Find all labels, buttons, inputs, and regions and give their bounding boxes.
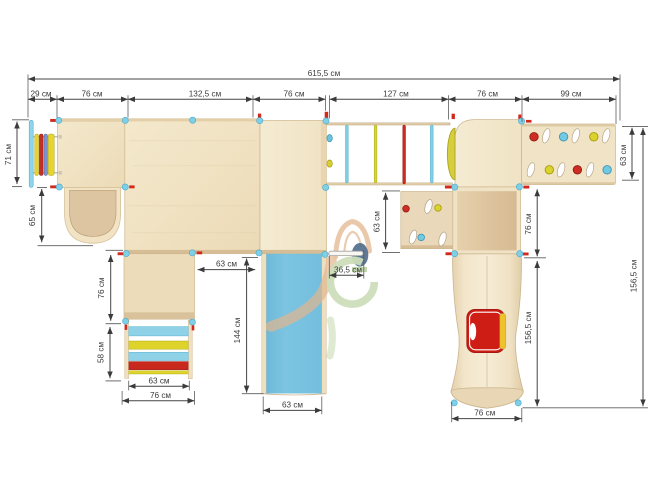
svg-text:127 см: 127 см xyxy=(383,89,409,98)
svg-text:63 см: 63 см xyxy=(148,376,169,385)
svg-text:76 см: 76 см xyxy=(474,409,495,418)
svg-text:132,5 см: 132,5 см xyxy=(189,89,222,98)
svg-text:29 см: 29 см xyxy=(30,89,51,98)
svg-text:144 см: 144 см xyxy=(233,317,242,343)
svg-text:71 см: 71 см xyxy=(4,144,13,165)
svg-text:76 см: 76 см xyxy=(524,213,533,234)
svg-text:65 см: 65 см xyxy=(28,205,37,226)
svg-text:76 см: 76 см xyxy=(81,89,102,98)
svg-text:63 см: 63 см xyxy=(372,211,381,232)
svg-text:63 см: 63 см xyxy=(216,260,237,269)
svg-text:156,5 см: 156,5 см xyxy=(630,259,639,292)
svg-text:36,5 см: 36,5 см xyxy=(334,265,362,274)
svg-text:76 см: 76 см xyxy=(150,391,171,400)
svg-text:63 см: 63 см xyxy=(282,400,303,409)
svg-text:76 см: 76 см xyxy=(283,89,304,98)
svg-text:156,5 см: 156,5 см xyxy=(524,311,533,344)
svg-text:58 см: 58 см xyxy=(96,342,105,363)
svg-text:63 см: 63 см xyxy=(619,144,628,165)
svg-text:76 см: 76 см xyxy=(477,89,498,98)
svg-text:76 см: 76 см xyxy=(97,277,106,298)
svg-text:99 см: 99 см xyxy=(560,89,581,98)
svg-text:615,5 см: 615,5 см xyxy=(308,69,341,78)
